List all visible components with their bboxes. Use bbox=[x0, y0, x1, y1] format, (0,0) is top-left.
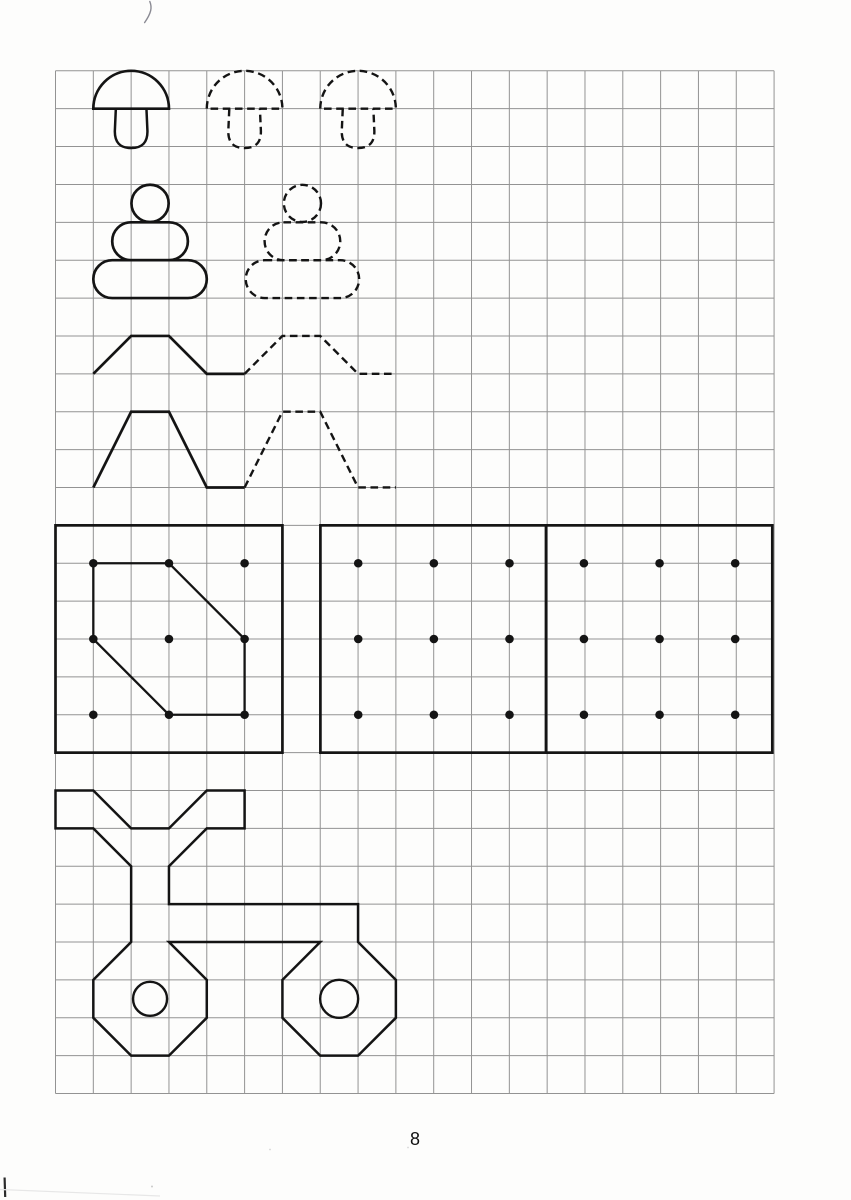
svg-text:8: 8 bbox=[410, 1129, 420, 1149]
